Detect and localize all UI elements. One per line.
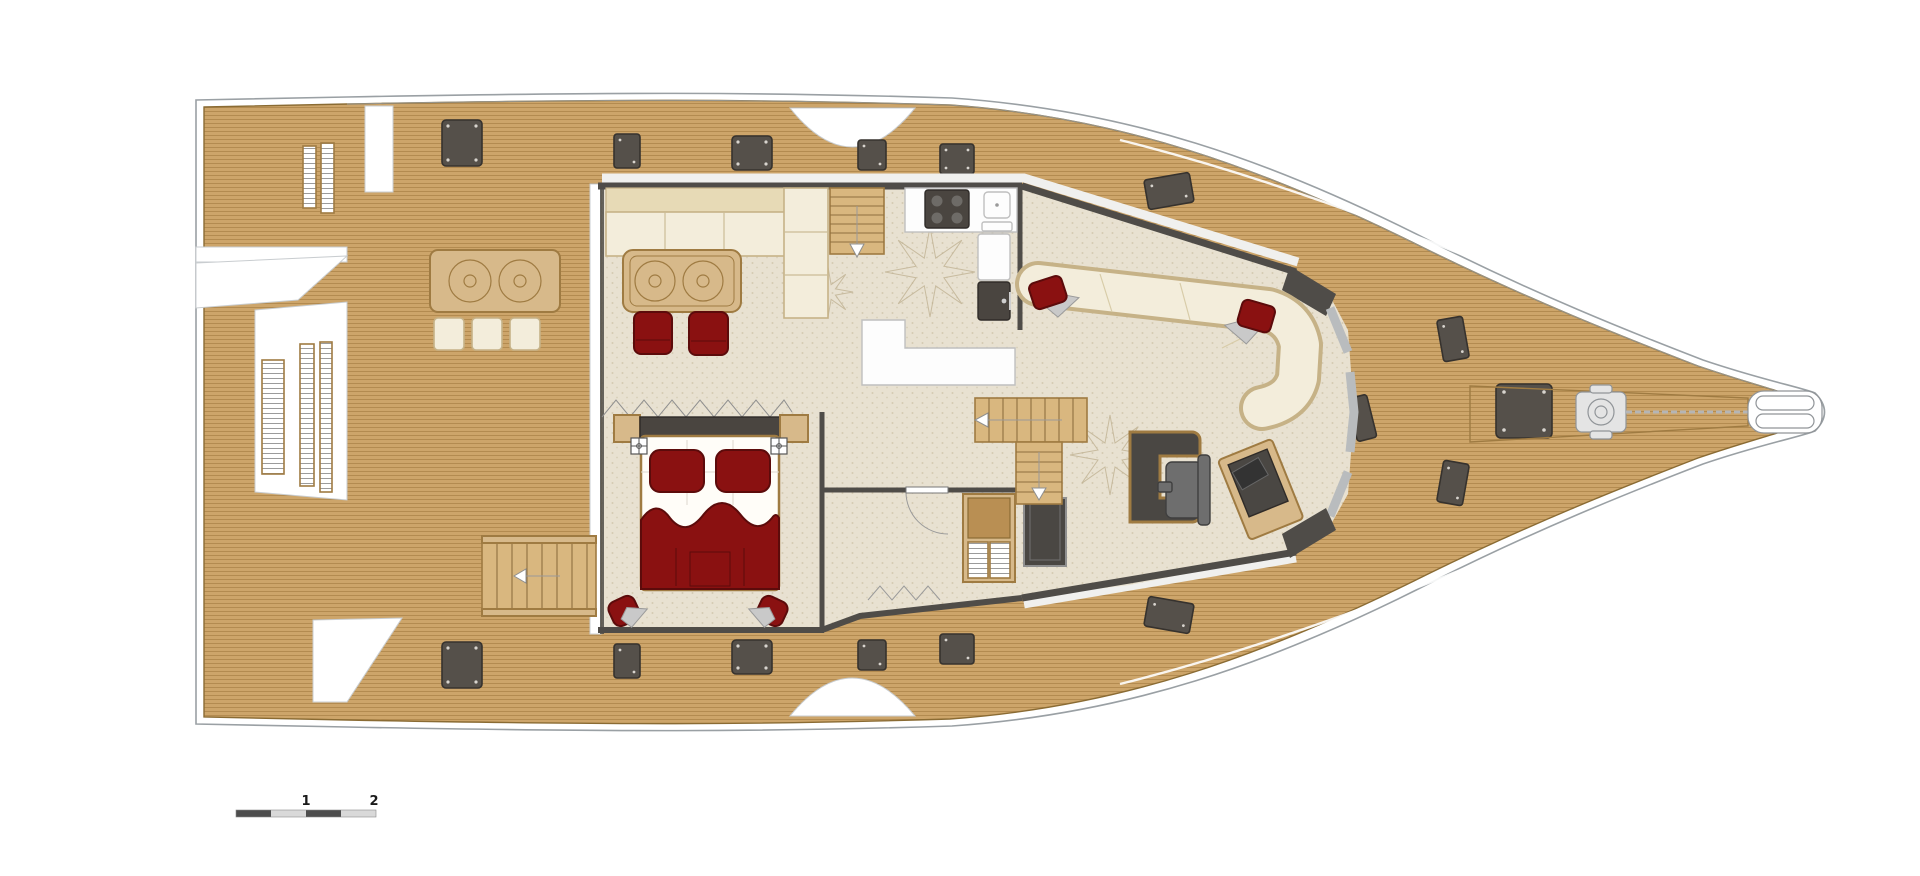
bow-window: [1350, 372, 1354, 452]
wardrobe-vents: [968, 542, 988, 578]
scale-segment: [306, 810, 341, 817]
deck-hatch: [858, 140, 886, 170]
deck-hatch: [442, 120, 482, 166]
sofa-back: [606, 188, 790, 214]
double-bed: [631, 436, 787, 590]
stairs-down-starboard: [1016, 442, 1062, 504]
deck-hatch: [614, 644, 640, 678]
cooktop: [925, 190, 969, 228]
deck-hatch: [614, 134, 640, 168]
door-leaf: [906, 487, 948, 493]
transom-louvre-step: [262, 360, 284, 474]
wardrobe-louvre: [963, 494, 1015, 582]
reading-light: [631, 438, 647, 454]
lounge-chair: [689, 312, 728, 355]
aft-deck-stairs: [482, 536, 596, 616]
scale-label-end: 2: [369, 794, 378, 809]
drainer-tray: [982, 222, 1012, 231]
scale-bar: 1 2: [236, 794, 379, 817]
deck-hatch: [442, 642, 482, 688]
bed-pillow: [716, 450, 770, 492]
shower-panel: [1024, 498, 1066, 566]
stairs-down-port: [975, 398, 1087, 442]
transom-louvre-step: [320, 342, 332, 492]
coffee-table: [623, 250, 741, 312]
windlass: [1576, 385, 1626, 439]
side-louvre-step: [303, 146, 316, 208]
deck-hatch: [940, 634, 974, 664]
wardrobe-door: [968, 498, 1010, 538]
scale-label-mid: 1: [301, 794, 310, 809]
deck-plan-drawing: 1 2: [0, 0, 1920, 876]
helm-seat: [1158, 455, 1210, 525]
bed-pillow: [650, 450, 704, 492]
bar-stool: [434, 318, 464, 350]
wardrobe-vents: [990, 542, 1010, 578]
deck-hatch: [732, 136, 772, 170]
bar-stools: [434, 318, 540, 350]
scale-segment: [341, 810, 376, 817]
lounge-chair: [634, 312, 672, 354]
refrigerator: [978, 282, 1010, 320]
foredeck-hatch: [1496, 384, 1552, 438]
sofa-chaise: [784, 188, 828, 318]
tall-cabinet: [978, 234, 1010, 280]
bar-stool: [472, 318, 502, 350]
transom-louvre-step: [300, 344, 314, 486]
deck-hatch: [940, 144, 974, 174]
stairs-to-flybridge: [830, 188, 884, 257]
scale-segment: [271, 810, 306, 817]
reading-light: [771, 438, 787, 454]
deck-joint-gap: [365, 106, 393, 192]
scale-segment: [236, 810, 271, 817]
deck-hatch: [858, 640, 886, 670]
wet-bar: [430, 250, 560, 312]
sink-drain: [995, 203, 999, 207]
bowsprit-pads: [1748, 391, 1822, 433]
deck-hatch: [732, 640, 772, 674]
bar-stool: [510, 318, 540, 350]
floor-plan-page: 1 2: [0, 0, 1920, 876]
side-louvre-step: [321, 143, 334, 213]
